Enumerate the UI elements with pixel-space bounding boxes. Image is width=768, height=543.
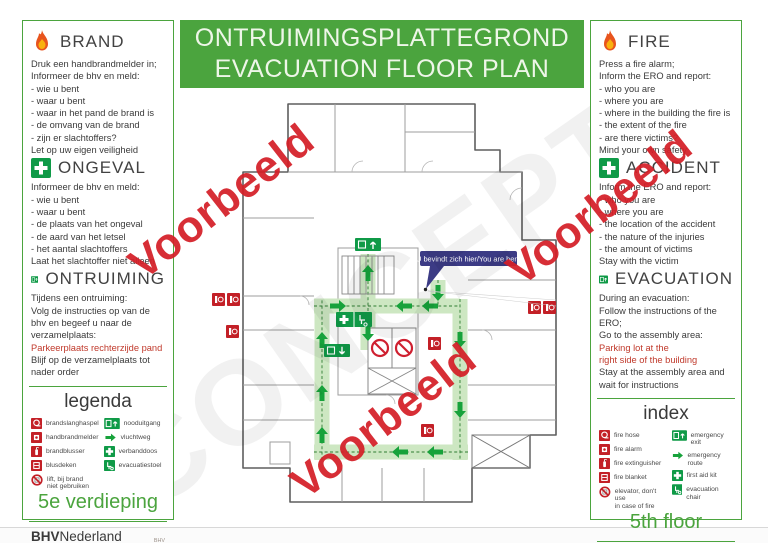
floor-label-nl: 5e verdieping: [31, 491, 165, 514]
legend-title: legenda: [31, 391, 165, 413]
no-elevator-icon: [31, 474, 43, 486]
fire-hose-icon: [599, 430, 610, 441]
fire-blanket-icon: [599, 472, 610, 483]
escape-route-arrow-icon: [672, 450, 684, 461]
emergency-exit-icon: [104, 418, 120, 429]
evacuation-instructions: During an evacuation: Follow the instruc…: [599, 292, 733, 341]
legend-item: lift, bij brand niet gebruiken: [31, 474, 100, 491]
legend-item: brandblusser: [31, 446, 100, 457]
evacuation-section-head: EVACUATION: [599, 269, 733, 289]
legend-divider: [29, 386, 167, 387]
index-item: elevator, don't use in case of fire: [599, 486, 668, 511]
fire-extinguisher-icon: [31, 446, 42, 457]
fire-section-head: FIRE: [599, 29, 733, 55]
index-item: fire alarm: [599, 444, 668, 455]
fire-blanket-icon: [31, 460, 42, 471]
index-grid: fire hose fire alarm fire extinguisher f…: [599, 430, 733, 511]
footer-divider: [29, 521, 167, 522]
first-aid-kit-icon: [104, 446, 115, 457]
legend-item: handbrandmelder: [31, 432, 100, 443]
ongeval-title: ONGEVAL: [58, 158, 146, 178]
index-item: emergency exit: [672, 430, 733, 447]
floor-label-en: 5th floor: [599, 511, 733, 534]
legend-item: nooduitgang: [104, 418, 165, 429]
right-panel-english: FIRE Press a fire alarm; Inform the ERO …: [590, 20, 742, 520]
fire-alarm-icon: [31, 432, 42, 443]
ongeval-section-head: ONGEVAL: [31, 158, 165, 178]
legend-grid: brandslanghaspel handbrandmelder brandbl…: [31, 418, 165, 491]
escape-route-arrow-icon: [104, 432, 117, 443]
title-nl: ONTRUIMINGSPLATTEGROND: [195, 23, 569, 54]
no-elevator-icon: [599, 486, 611, 498]
evacuation-title: EVACUATION: [615, 269, 733, 289]
stay-instructions-en: Stay at the assembly area and wait for i…: [599, 366, 733, 391]
ontruiming-instructions: Tijdens een ontruiming: Volg de instruct…: [31, 292, 165, 341]
flame-icon: [599, 29, 621, 55]
legend-item: verbanddoos: [104, 446, 165, 457]
emergency-exit-icon: [599, 272, 608, 287]
flame-icon: [31, 29, 53, 55]
index-item: fire extinguisher: [599, 458, 668, 469]
assembly-point-nl: Parkeerplaats rechterzijde pand: [31, 342, 165, 354]
evacuation-chair-icon: [104, 460, 115, 471]
legend-item: evacuatiestoel: [104, 460, 165, 471]
fire-hose-icon: [31, 418, 42, 429]
index-item: fire hose: [599, 430, 668, 441]
emergency-exit-icon: [672, 430, 687, 441]
bhv-nederland-logo: BHVNederland: [31, 529, 122, 543]
evacuation-floor-plan-page: CONCEPT: [0, 0, 768, 543]
index-title: index: [599, 403, 733, 425]
index-divider: [597, 398, 735, 399]
legend-item: vluchtweg: [104, 432, 165, 443]
doc-meta: BHV OP.05.01 januari 2024: [143, 538, 165, 543]
first-aid-kit-icon: [672, 470, 683, 481]
legend-item: blusdeken: [31, 460, 100, 471]
title-en: EVACUATION FLOOR PLAN: [215, 54, 550, 85]
assembly-point-en: Parking lot at the right side of the bui…: [599, 342, 733, 367]
panel-footer: BHVNederland BHV OP.05.01 januari 2024: [31, 528, 165, 543]
footer-divider: [597, 541, 735, 542]
fire-alarm-icon: [599, 444, 610, 455]
fire-title: FIRE: [628, 32, 671, 52]
index-item: emergency route: [672, 450, 733, 467]
fire-extinguisher-icon: [599, 458, 610, 469]
legend-item: brandslanghaspel: [31, 418, 100, 429]
index-item: first aid kit: [672, 470, 733, 481]
brand-section-head: BRAND: [31, 29, 165, 55]
first-aid-cross-icon: [31, 158, 51, 178]
emergency-exit-icon: [31, 272, 38, 287]
brand-instructions: Druk een handbrandmelder in; Informeer d…: [31, 58, 165, 156]
evacuation-chair-icon: [672, 484, 683, 495]
header-band: ONTRUIMINGSPLATTEGROND EVACUATION FLOOR …: [180, 20, 584, 88]
stay-instructions-nl: Blijf op de verzamelplaats tot nader ord…: [31, 354, 165, 379]
index-item: fire blanket: [599, 472, 668, 483]
index-item: evacuation chair: [672, 484, 733, 501]
brand-title: BRAND: [60, 32, 125, 52]
